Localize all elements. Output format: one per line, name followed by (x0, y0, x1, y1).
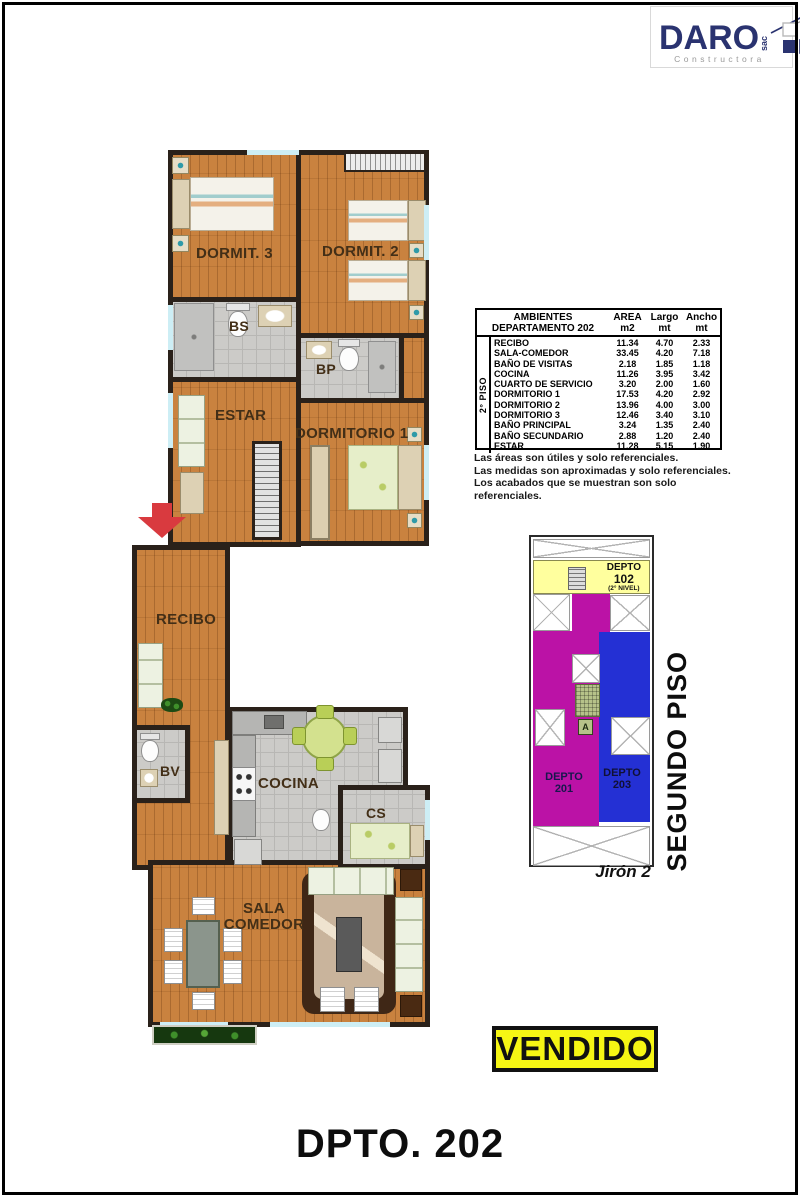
table-cell: 1.60 (683, 379, 720, 389)
lightwell-box (610, 595, 650, 631)
planter-box (152, 1025, 257, 1045)
table-cell: DORMITORIO 2 (491, 400, 609, 410)
toilet (312, 809, 330, 831)
table-cell: 1.35 (646, 420, 683, 430)
nightstand (409, 305, 424, 320)
shower (368, 341, 396, 393)
corner-table (400, 995, 422, 1017)
table-cell: RECIBO (491, 338, 609, 348)
unit-201-area (572, 594, 610, 632)
bed-pillow (408, 260, 426, 301)
stair-a-box: A (578, 719, 593, 735)
table-cell: 11.26 (609, 369, 646, 379)
flyer-page: DARO sac Constructora (0, 0, 800, 1197)
note-line: Las áreas son útiles y solo referenciale… (474, 452, 736, 465)
table-cell: 17.53 (609, 389, 646, 399)
street-label: Jirón 2 (583, 862, 663, 882)
chair (343, 727, 357, 745)
table-row: DORMITORIO 312.463.403.10 (491, 410, 720, 420)
table-cell: 3.95 (646, 369, 683, 379)
unit-203-label: DEPTO 203 (595, 767, 649, 791)
nightstand (172, 157, 189, 174)
appliance (234, 839, 262, 865)
table-cell: 7.18 (683, 348, 720, 358)
label-dormitorio-1: DORMITORIO 1 (295, 425, 408, 442)
lightwell-box (572, 654, 600, 683)
chair (316, 757, 334, 771)
table-cell: 1.20 (646, 431, 683, 441)
label-cs: CS (366, 805, 386, 821)
sold-badge: VENDIDO (492, 1026, 658, 1072)
chair (292, 727, 306, 745)
sink (140, 769, 158, 787)
window (168, 393, 173, 448)
sold-badge-text: VENDIDO (496, 1030, 653, 1068)
table-cell: DORMITORIO 3 (491, 410, 609, 420)
label-cocina: COCINA (258, 775, 319, 792)
sofa (395, 897, 423, 992)
column-header-largo: Largo mt (646, 312, 683, 334)
table-cell: 2.33 (683, 338, 720, 348)
label-sala-comedor: SALA COMEDOR (222, 901, 306, 933)
nightstand (407, 513, 422, 528)
entrance-arrow-icon (138, 503, 186, 538)
table-cell: 3.42 (683, 369, 720, 379)
floor-label-strip: 2° PISO (477, 337, 491, 453)
kitchen-table (302, 715, 347, 760)
table-cell: 3.10 (683, 410, 720, 420)
table-cell: 2.40 (683, 420, 720, 430)
coffee-table (336, 917, 362, 972)
page-title: DPTO. 202 (0, 1122, 800, 1167)
table-cell: BAÑO DE VISITAS (491, 359, 609, 369)
table-cell: 1.90 (683, 441, 720, 451)
table-row: BAÑO PRINCIPAL3.241.352.40 (491, 420, 720, 430)
unit-102-band: DEPTO 102 (2° NIVEL) (533, 560, 650, 594)
bed-headboard (398, 445, 422, 510)
window (247, 150, 299, 155)
table-row: COCINA11.263.953.42 (491, 369, 720, 379)
table-cell: 4.20 (646, 389, 683, 399)
window (168, 305, 173, 350)
bed-pillow (410, 825, 424, 857)
label-bs: BS (229, 318, 249, 334)
label-dormitorio-2: DORMIT. 2 (322, 243, 399, 260)
shower (174, 303, 214, 371)
floor-text-vertical: SEGUNDO PISO (654, 640, 700, 882)
table-cell: ESTAR (491, 441, 609, 451)
table-cell: COCINA (491, 369, 609, 379)
nightstand (407, 427, 422, 442)
label-bp: BP (316, 361, 336, 377)
appliance (378, 717, 402, 743)
cabinet (214, 740, 229, 835)
column-header-ancho: Ancho mt (683, 312, 720, 334)
logo-word: DARO (659, 21, 759, 55)
bed (348, 260, 408, 301)
toilet (141, 740, 159, 762)
toilet-tank (338, 339, 360, 347)
table-title-line2: DEPARTAMENTO 202 (477, 323, 609, 334)
logo-tagline: Constructora (651, 54, 788, 64)
table-cell: DORMITORIO 1 (491, 389, 609, 399)
table-cell: CUARTO DE SERVICIO (491, 379, 609, 389)
window (270, 1022, 390, 1027)
table-cell: 1.85 (646, 359, 683, 369)
chair (192, 992, 215, 1010)
table-row: BAÑO DE VISITAS2.181.851.18 (491, 359, 720, 369)
table-cell: 2.92 (683, 389, 720, 399)
sofa (138, 643, 163, 708)
floor-plan: DORMIT. 3 DORMIT. 2 BS BP ESTAR DORMITOR… (130, 145, 435, 1055)
table-cell: 4.70 (646, 338, 683, 348)
corner-table (400, 869, 422, 891)
label-dormitorio-3: DORMIT. 3 (196, 245, 273, 262)
table-row: DORMITORIO 117.534.202.92 (491, 389, 720, 399)
table-row: BAÑO SECUNDARIO2.881.202.40 (491, 431, 720, 441)
plant (161, 698, 183, 712)
table-cell: 2.00 (646, 379, 683, 389)
location-diagram: DEPTO 102 (2° NIVEL) A DEPTO 201 DEPTO 2… (529, 535, 654, 867)
note-line: Los acabados que se muestran son solo re… (474, 477, 736, 502)
table-cell: SALA-COMEDOR (491, 348, 609, 358)
hall-strip (399, 333, 429, 408)
nightstand (409, 243, 424, 258)
table-cell: 13.96 (609, 400, 646, 410)
sofa (178, 395, 205, 467)
table-cell: 3.20 (609, 379, 646, 389)
table-cell: 11.34 (609, 338, 646, 348)
chair (192, 897, 215, 915)
table-header: AMBIENTES DEPARTAMENTO 202 AREA m2 Largo… (477, 310, 720, 337)
kitchen-sink (264, 715, 284, 729)
toilet-tank (140, 733, 160, 740)
table-cell: 3.00 (683, 400, 720, 410)
chair (164, 960, 183, 984)
table-cell: BAÑO PRINCIPAL (491, 420, 609, 430)
table-row: ESTAR11.285.151.90 (491, 441, 720, 451)
floor-label: 2° PISO (478, 377, 488, 413)
bed (348, 445, 398, 510)
armchair (320, 987, 345, 1012)
toilet-tank (226, 303, 250, 311)
sofa (308, 867, 394, 895)
nightstand (172, 235, 189, 252)
table-row: RECIBO11.344.702.33 (491, 338, 720, 348)
table-cell: 33.45 (609, 348, 646, 358)
table-title-line1: AMBIENTES (477, 312, 609, 323)
table-row: DORMITORIO 213.964.003.00 (491, 400, 720, 410)
table-cell: 3.40 (646, 410, 683, 420)
table-cell: 2.18 (609, 359, 646, 369)
chair (164, 928, 183, 952)
measurements-table: AMBIENTES DEPARTAMENTO 202 AREA m2 Largo… (475, 308, 722, 450)
column-header-area: AREA m2 (609, 312, 646, 334)
wardrobe (310, 445, 330, 540)
bed (350, 823, 410, 859)
table-cell: BAÑO SECUNDARIO (491, 431, 609, 441)
table-cell: 4.00 (646, 400, 683, 410)
table-cell: 11.28 (609, 441, 646, 451)
armchair (354, 987, 379, 1012)
table-cell: 12.46 (609, 410, 646, 420)
table-row: SALA-COMEDOR33.454.207.18 (491, 348, 720, 358)
company-logo: DARO sac Constructora (650, 6, 793, 68)
appliance (378, 749, 402, 783)
table-title: AMBIENTES DEPARTAMENTO 202 (477, 312, 609, 334)
unit-102-label: DEPTO 102 (2° NIVEL) (607, 563, 641, 593)
table-cell: 2.88 (609, 431, 646, 441)
lightwell-box (533, 594, 570, 631)
disclaimer-notes: Las áreas son útiles y solo referenciale… (474, 452, 736, 502)
chair (316, 705, 334, 719)
stairs (252, 441, 282, 540)
table-cell: 3.24 (609, 420, 646, 430)
lightwell-box (533, 826, 650, 866)
window (424, 445, 429, 500)
lightwell-box (611, 717, 650, 755)
logo-house-icon (770, 13, 800, 55)
table-body: RECIBO11.344.702.33SALA-COMEDOR33.454.20… (491, 337, 720, 453)
window (424, 205, 429, 260)
table-row: CUARTO DE SERVICIO3.202.001.60 (491, 379, 720, 389)
chair (223, 960, 242, 984)
label-bv: BV (160, 763, 180, 779)
stairs-block (575, 684, 600, 717)
sink (258, 305, 292, 327)
note-line: Las medidas son aproximadas y solo refer… (474, 465, 736, 478)
label-recibo: RECIBO (156, 611, 216, 628)
bed (190, 177, 274, 231)
logo-sac: sac (760, 36, 769, 51)
unit-201-label: DEPTO 201 (535, 771, 593, 795)
dining-table (186, 920, 220, 988)
closet (344, 152, 426, 172)
bed (348, 200, 408, 241)
lightwell-box (533, 539, 650, 558)
sink (306, 341, 332, 359)
table-cell: 2.40 (683, 431, 720, 441)
table-cell: 1.18 (683, 359, 720, 369)
stove (232, 767, 256, 801)
bed-headboard (172, 179, 190, 229)
toilet (339, 347, 359, 371)
table-cell: 4.20 (646, 348, 683, 358)
label-estar: ESTAR (215, 407, 266, 424)
stairs-icon (568, 567, 586, 590)
lightwell-box (535, 709, 565, 746)
window (425, 800, 430, 840)
table-cell: 5.15 (646, 441, 683, 451)
